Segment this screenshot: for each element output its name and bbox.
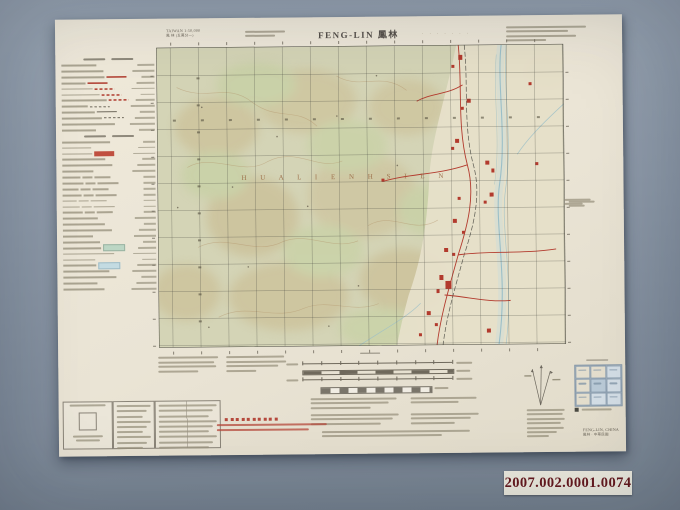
legend-symbol-redbox [94,151,114,156]
neatline-tick [150,76,153,77]
neatline-tick [478,40,479,43]
neatline-tick [565,72,568,73]
neatline-tick [568,342,571,343]
neatline-tick [394,40,395,43]
neatline-tick [153,292,156,293]
neatline-tick [534,39,535,42]
neatline-tick [506,39,507,42]
illegible-text-block [322,430,472,440]
neatline-tick [153,319,156,320]
neatline-tick [257,351,258,354]
neatline-tick [151,103,154,104]
index-grid-caption [586,359,608,360]
neatline-tick [425,349,426,352]
legend-symbol-blubox [98,262,120,269]
legend-symbol-red [106,75,126,79]
neatline-tick [152,238,155,239]
neatline-tick [397,349,398,352]
catalog-number: 2007.002.0001.0074 [505,475,632,492]
neatline-tick [422,40,423,43]
legend-symbol-redd [95,87,115,91]
illegible-text-block [411,397,481,406]
neatline-tick [537,348,538,351]
legend-row [63,286,156,293]
neatline-tick [173,352,174,355]
corner-sheet-name: FENG-LIN, CHINA 鳳林 · 中華民國 [583,427,619,437]
index-grid-cell [606,365,621,378]
index-grid-cell [591,365,606,378]
glossary-table-2 [155,400,221,449]
neatline-tick [229,351,230,354]
illegible-text-block [565,199,593,207]
index-grid-legend [575,407,612,411]
neatline-tick [568,288,571,289]
series-subtitle: 鳳 林 (五萬分一) [166,33,200,38]
legend-symbol-blkd [104,116,124,120]
neatline-tick [153,346,156,347]
neatline-tick [285,351,286,354]
neatline-tick [509,348,510,351]
map-title: FENG-LIN 鳳林 [318,27,399,41]
neatline-tick [566,126,569,127]
neatline-tick [310,41,311,44]
neatline-tick [341,350,342,353]
series-title: TAIWAN 1:50,000 鳳 林 (五萬分一) [166,28,200,38]
index-grid-cell [591,379,606,392]
neatline-tick [152,265,155,266]
neatline-tick [568,315,571,316]
photo-of-map: TAIWAN 1:50,000 鳳 林 (五萬分一) FENG-LIN 鳳林 ·… [0,0,680,510]
neatline-tick [152,211,155,212]
illegible-text-block [311,397,399,411]
glossary-table-1 [113,401,155,449]
neatline-tick [567,207,570,208]
neatline-tick [453,349,454,352]
index-grid-cell [575,366,590,379]
neatline-tick [282,42,283,45]
neatline-tick [566,153,569,154]
legend-symbol-blkd [90,104,110,108]
neatline-tick [366,41,367,44]
illegible-text-block [527,409,567,440]
neatline-tick [226,42,227,45]
index-grid-cell [576,392,591,405]
neatline-tick [198,42,199,45]
index-grid-cell [606,392,621,405]
illegible-text-block [411,413,481,427]
neatline-tick [151,157,154,158]
corner-sheet-name-cn: 鳳林 · 中華民國 [583,432,619,437]
legend-symbol-grnbox [103,244,125,251]
neatline-tick [450,40,451,43]
legend-symbol-blk [97,110,117,114]
neatline-tick [481,349,482,352]
index-grid-cell [591,392,606,405]
boundary-diagram-box [63,401,113,449]
neatline-tick [151,130,154,131]
map-sheet: TAIWAN 1:50,000 鳳 林 (五萬分一) FENG-LIN 鳳林 ·… [55,14,626,456]
illegible-text-block [217,423,329,433]
neatline-tick [567,261,570,262]
neatline-tick [567,234,570,235]
projection-marks: · · · · · · · [422,31,471,36]
warning-chinese-text [225,418,278,422]
legend-symbol-redd [102,92,122,96]
neatline-tick [201,351,202,354]
legend-symbol-red [88,81,108,85]
boundary-square-icon [79,412,97,430]
illegible-text-block [245,31,287,39]
neatline-tick [170,43,171,46]
legend-symbol-redd [109,98,129,102]
neatline-tick [566,99,569,100]
illegible-text-block [158,356,220,375]
neatline-tick [254,42,255,45]
neatline-tick [369,350,370,353]
catalog-label: 2007.002.0001.0074 [504,471,632,495]
illegible-text-block [226,356,288,375]
legend-panel [61,56,156,293]
declination-diagram-icon [520,361,564,409]
index-to-adjoining-sheets [574,364,622,406]
index-grid-cell [575,379,590,392]
neatline-tick [566,180,569,181]
illegible-text-block [506,26,588,44]
map-body[interactable]: H U A L I E N H S I E N [156,44,566,348]
neatline-tick [151,184,154,185]
neatline-tick [338,41,339,44]
index-grid-cell [606,379,621,392]
neatline-tick [313,350,314,353]
